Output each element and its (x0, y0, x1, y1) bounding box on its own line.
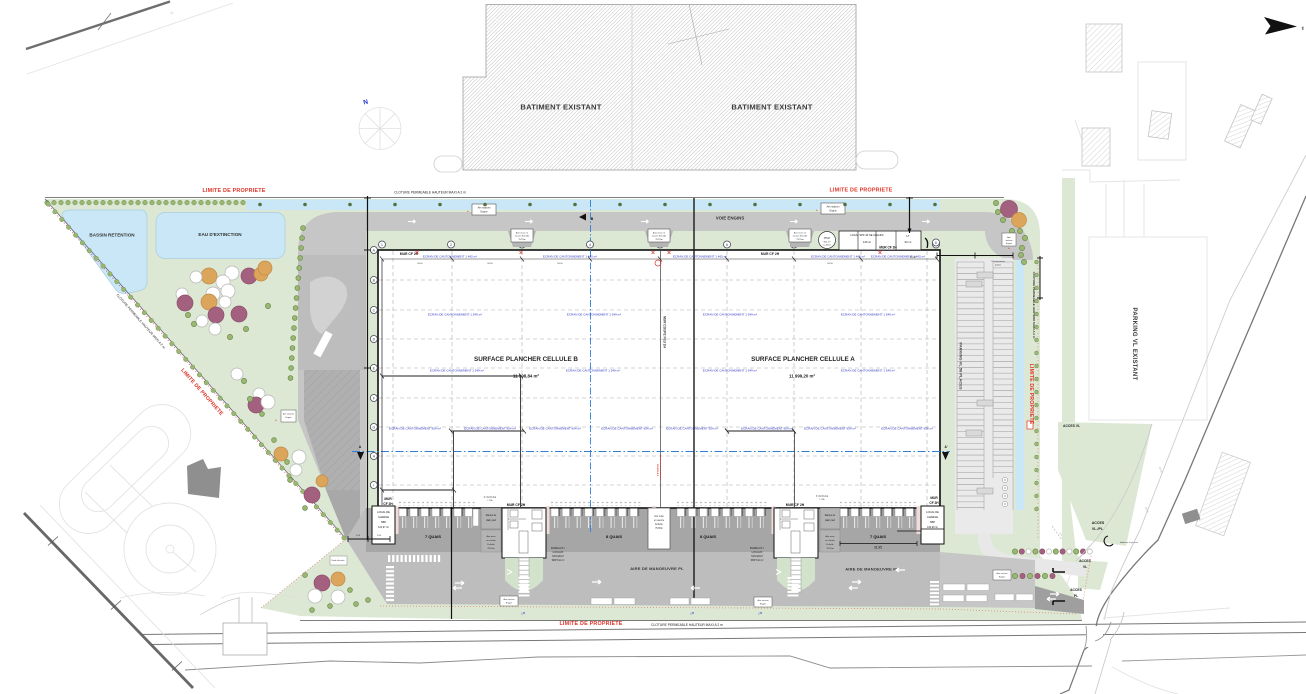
svg-text:ECRAN DE CANTONNEMENT 1 549 m: ECRAN DE CANTONNEMENT 1 549 m² (566, 369, 620, 373)
svg-text:Engins: Engins (1006, 243, 1012, 245)
svg-text:SBP 311 m²: SBP 311 m² (552, 559, 565, 562)
svg-text:En: En (1008, 248, 1010, 250)
svg-text:△B: △B (758, 611, 762, 615)
svg-text:MUR: MUR (930, 496, 938, 500)
svg-text:piéton: piéton (995, 264, 1002, 267)
svg-text:plain pied: plain pied (486, 520, 497, 522)
svg-text:VL./PL.: VL./PL. (1092, 527, 1104, 531)
svg-text:PHAP: PHAP (824, 237, 831, 240)
svg-text:A': A' (944, 445, 947, 449)
svg-text:ECRAN DE CANTONNEMENT 1 549 m: ECRAN DE CANTONNEMENT 1 549 m² (841, 369, 895, 373)
svg-text:58,50: 58,50 (557, 263, 563, 265)
svg-text:VOIE ENGINS: VOIE ENGINS (716, 216, 745, 221)
svg-text:75/15m: 75/15m (655, 528, 663, 530)
svg-text:MUR CF 2H: MUR CF 2H (786, 503, 805, 507)
svg-text:CF 2H: CF 2H (929, 501, 939, 505)
svg-text:SURFACE PLANCHER CELLULE A: SURFACE PLANCHER CELLULE A (751, 356, 855, 363)
svg-text:ECRAN DE CANTONNEMENT 1 465 m: ECRAN DE CANTONNEMENT 1 465 m² (871, 255, 925, 259)
svg-text:900 m³: 900 m³ (824, 241, 831, 244)
svg-text:11 999,20 m²: 11 999,20 m² (789, 374, 815, 379)
svg-text:G: G (372, 425, 375, 429)
svg-text:stationn: stationn (1005, 239, 1012, 242)
svg-text:En: En (275, 420, 277, 422)
svg-text:ECRAN DE CANTONNEMENT 954 m²: ECRAN DE CANTONNEMENT 954 m² (741, 427, 793, 431)
svg-text:Engins: Engins (480, 212, 488, 214)
svg-text:Echelle: Echelle (487, 544, 495, 546)
svg-text:AIRE DE MANOEUVRE PL: AIRE DE MANOEUVRE PL (845, 567, 899, 572)
svg-text:SURFACE PLANCHER CELLULE B: SURFACE PLANCHER CELLULE B (474, 356, 578, 363)
svg-text:en station: en station (825, 539, 835, 542)
svg-text:CHARGE: CHARGE (378, 515, 389, 519)
svg-text:AIRE DE MANOEUVRE PL: AIRE DE MANOEUVRE PL (630, 566, 684, 571)
svg-text:Engins: Engins (506, 603, 512, 605)
svg-text:LT5A: LT5A (487, 499, 493, 502)
svg-text:75/15m: 75/15m (796, 239, 803, 241)
svg-text:ECRAN DE CANTONNEMENT 954 m²: ECRAN DE CANTONNEMENT 954 m² (666, 427, 718, 431)
svg-text:CLOTURE PERMEABLE HAUTEUR MAXI: CLOTURE PERMEABLE HAUTEUR MAXI A 2 m (651, 623, 723, 627)
svg-text:CLOTURE PERMEABLE HAUTEUR MAXI: CLOTURE PERMEABLE HAUTEUR MAXI A 2 m (1032, 272, 1036, 339)
svg-text:oeuvre Echelle: oeuvre Echelle (515, 235, 530, 238)
svg-text:MUR COUPE FEU 2H: MUR COUPE FEU 2H (663, 316, 667, 348)
svg-text:Engins: Engins (285, 417, 291, 419)
svg-text:MUR CF 2H: MUR CF 2H (879, 246, 897, 250)
svg-text:En: En (467, 211, 469, 213)
svg-text:Aire mise en: Aire mise en (516, 232, 529, 235)
svg-text:Echelle: Echelle (826, 544, 834, 546)
svg-text:SOCIAUX: SOCIAUX (751, 554, 763, 558)
svg-text:Rampe de: Rampe de (825, 515, 836, 517)
svg-text:Aire traction: Aire traction (996, 572, 1008, 575)
svg-text:LOCAL DE: LOCAL DE (926, 510, 939, 514)
svg-text:6: 6 (726, 243, 728, 247)
svg-text:CHARGE: CHARGE (927, 515, 938, 519)
svg-text:LIMITE DE PROPRIETE: LIMITE DE PROPRIETE (202, 188, 265, 194)
svg-text:LOCAUX: LOCAUX (752, 550, 763, 554)
svg-text:7 QUAIS: 7 QUAIS (870, 534, 886, 539)
svg-text:oeuvre Echelle: oeuvre Echelle (652, 235, 667, 238)
svg-text:LOCAL SPK 30 SE CHAUFF: LOCAL SPK 30 SE CHAUFF (850, 233, 884, 237)
svg-text:75/15m: 75/15m (655, 239, 662, 241)
svg-text:PARKING VL 58 PLACES: PARKING VL 58 PLACES (959, 342, 964, 390)
svg-text:ECRAN DE CANTONNEMENT 1 549 m: ECRAN DE CANTONNEMENT 1 549 m² (703, 313, 757, 317)
svg-text:Aire stationn: Aire stationn (827, 206, 840, 209)
svg-text:90 m²: 90 m² (905, 240, 912, 244)
svg-text:Engins: Engins (829, 211, 837, 213)
svg-text:LT: LT (906, 234, 909, 238)
svg-text:△B: △B (521, 611, 525, 615)
svg-text:SOCIAUX: SOCIAUX (552, 554, 564, 558)
svg-text:31,95: 31,95 (874, 546, 882, 550)
svg-text:EAU D'EXTINCTION: EAU D'EXTINCTION (198, 232, 242, 237)
svg-text:Aire mise en: Aire mise en (653, 232, 666, 235)
svg-text:ACCES: ACCES (1092, 521, 1105, 525)
svg-text:SBP 311 m²: SBP 311 m² (751, 559, 764, 562)
svg-text:PL: PL (1074, 594, 1078, 598)
svg-text:LOCAL DE: LOCAL DE (377, 510, 390, 514)
svg-text:CLOTURE PERMEABLE HAUTEUR MAXI: CLOTURE PERMEABLE HAUTEUR MAXI A 2 m (394, 191, 466, 195)
svg-text:en oeuvre: en oeuvre (654, 519, 665, 522)
svg-text:MUR CF 2H: MUR CF 2H (761, 252, 780, 256)
svg-text:plain pied: plain pied (825, 520, 836, 522)
svg-text:VL: VL (1083, 565, 1087, 569)
svg-text:MUR: MUR (384, 497, 392, 501)
svg-text:ECRAN DE CANTONNEMENT 1 549 m: ECRAN DE CANTONNEMENT 1 549 m² (567, 313, 621, 317)
svg-text:BATIMENT EXISTANT: BATIMENT EXISTANT (520, 103, 601, 112)
svg-text:101,97 m²: 101,97 m² (378, 526, 389, 529)
svg-text:1: 1 (381, 243, 383, 247)
svg-text:Aire traction: Aire traction (503, 598, 515, 601)
svg-text:BATIMENT EXISTANT: BATIMENT EXISTANT (731, 103, 812, 112)
svg-text:PARKING VL EXISTANT: PARKING VL EXISTANT (1131, 307, 1137, 380)
svg-text:140 m²: 140 m² (863, 240, 871, 244)
svg-text:LT5A: LT5A (819, 498, 825, 501)
svg-text:(+30m): (+30m) (824, 245, 831, 247)
svg-text:Rampe de: Rampe de (486, 515, 497, 517)
svg-text:Aire mise en: Aire mise en (794, 232, 807, 235)
svg-text:LIMITE DE PROPRIETE: LIMITE DE PROPRIETE (559, 621, 622, 627)
svg-text:58,50: 58,50 (827, 263, 833, 265)
svg-text:Aire mise: Aire mise (654, 515, 664, 518)
svg-text:ECRAN DE CANTONNEMENT 1 549 m: ECRAN DE CANTONNEMENT 1 549 m² (428, 313, 482, 317)
svg-text:SBP: SBP (381, 520, 386, 524)
svg-text:BUREAUX /: BUREAUX / (750, 546, 764, 550)
svg-text:ECRAN DE CANTONNEMENT 954 m²: ECRAN DE CANTONNEMENT 954 m² (464, 427, 516, 431)
svg-text:ECRAN DE CANTONNEMENT 1 465 m: ECRAN DE CANTONNEMENT 1 465 m² (811, 255, 865, 259)
svg-text:Aire mise: Aire mise (486, 535, 496, 538)
svg-text:ECRAN DE CANTONNEMENT 954 m²: ECRAN DE CANTONNEMENT 954 m² (601, 427, 653, 431)
svg-text:58,50: 58,50 (487, 263, 493, 265)
svg-text:7 QUAIS: 7 QUAIS (425, 534, 441, 539)
svg-text:75/15m: 75/15m (487, 548, 494, 550)
svg-text:P.H MCLA 9: P.H MCLA 9 (656, 464, 659, 477)
svg-text:ECRAN DE CANTONNEMENT 1 549 m: ECRAN DE CANTONNEMENT 1 549 m² (703, 369, 757, 373)
svg-text:Aire mise: Aire mise (825, 535, 835, 538)
svg-text:F: F (373, 396, 375, 400)
svg-text:P. AVICULE: P. AVICULE (484, 496, 497, 499)
svg-text:Aire traction: Aire traction (757, 599, 769, 602)
svg-text:4: 4 (589, 243, 591, 247)
svg-text:ECRAN DE CANTONNEMENT 1 465 m: ECRAN DE CANTONNEMENT 1 465 m² (673, 255, 727, 259)
svg-text:P. AVICULE: P. AVICULE (816, 495, 829, 498)
svg-text:2: 2 (450, 243, 452, 247)
svg-text:Aire stationn: Aire stationn (283, 413, 294, 416)
svg-text:En: En (816, 210, 818, 212)
svg-text:LOCAUX: LOCAUX (553, 550, 564, 554)
svg-text:Echelle: Echelle (655, 524, 663, 526)
svg-text:6: 6 (935, 241, 937, 245)
svg-text:CF 2H: CF 2H (383, 502, 393, 506)
svg-text:oeuvre Echelle: oeuvre Echelle (793, 235, 808, 238)
svg-text:MUR CF 2H: MUR CF 2H (507, 503, 526, 507)
svg-text:46,00: 46,00 (910, 256, 917, 259)
svg-text:Engins: Engins (999, 577, 1005, 579)
svg-text:75/15m: 75/15m (826, 548, 833, 550)
svg-text:Cheminement: Cheminement (991, 260, 1005, 263)
svg-text:58,50: 58,50 (417, 263, 423, 265)
svg-text:déplacer le poteau: déplacer le poteau (1120, 541, 1139, 544)
svg-text:BUREAUX /: BUREAUX / (551, 546, 565, 550)
svg-text:SBP: SBP (930, 520, 935, 524)
svg-text:Aire stationn: Aire stationn (478, 207, 491, 210)
svg-text:ECRAN DE CANTONNEMENT 954 m²: ECRAN DE CANTONNEMENT 954 m² (881, 427, 933, 431)
svg-text:I: I (373, 483, 374, 487)
svg-text:Rond véhicules: Rond véhicules (332, 560, 345, 562)
svg-text:ACCES VL: ACCES VL (1063, 424, 1080, 428)
svg-text:△B: △B (690, 611, 694, 615)
svg-text:ECRAN DE CANTONNEMENT 1 549 m: ECRAN DE CANTONNEMENT 1 549 m² (430, 369, 484, 373)
svg-text:ECRAN DE CANTONNEMENT 954 m²: ECRAN DE CANTONNEMENT 954 m² (389, 427, 441, 431)
svg-text:75/15m: 75/15m (518, 239, 525, 241)
svg-text:100,99 m²: 100,99 m² (927, 526, 938, 529)
svg-text:MUR CF 2H: MUR CF 2H (400, 252, 419, 256)
svg-text:BASSIN RETENTION: BASSIN RETENTION (89, 233, 135, 238)
svg-text:Engins: Engins (760, 604, 766, 606)
svg-text:ACCES: ACCES (1070, 588, 1083, 592)
svg-text:ECRAN DE CANTONNEMENT 1 549 m: ECRAN DE CANTONNEMENT 1 549 m² (841, 313, 895, 317)
svg-text:LIMITE DE PROPRIETE: LIMITE DE PROPRIETE (829, 188, 892, 194)
svg-text:ECRAN DE CANTONNEMENT 954 m²: ECRAN DE CANTONNEMENT 954 m² (529, 427, 581, 431)
svg-text:ECRAN DE CANTONNEMENT 954 m²: ECRAN DE CANTONNEMENT 954 m² (804, 427, 856, 431)
svg-text:8 QUAIS: 8 QUAIS (700, 534, 716, 539)
svg-text:LIMITE DE PROPRIETE: LIMITE DE PROPRIETE (1028, 364, 1034, 425)
svg-text:en station: en station (486, 539, 496, 542)
svg-text:8 QUAIS: 8 QUAIS (606, 534, 622, 539)
